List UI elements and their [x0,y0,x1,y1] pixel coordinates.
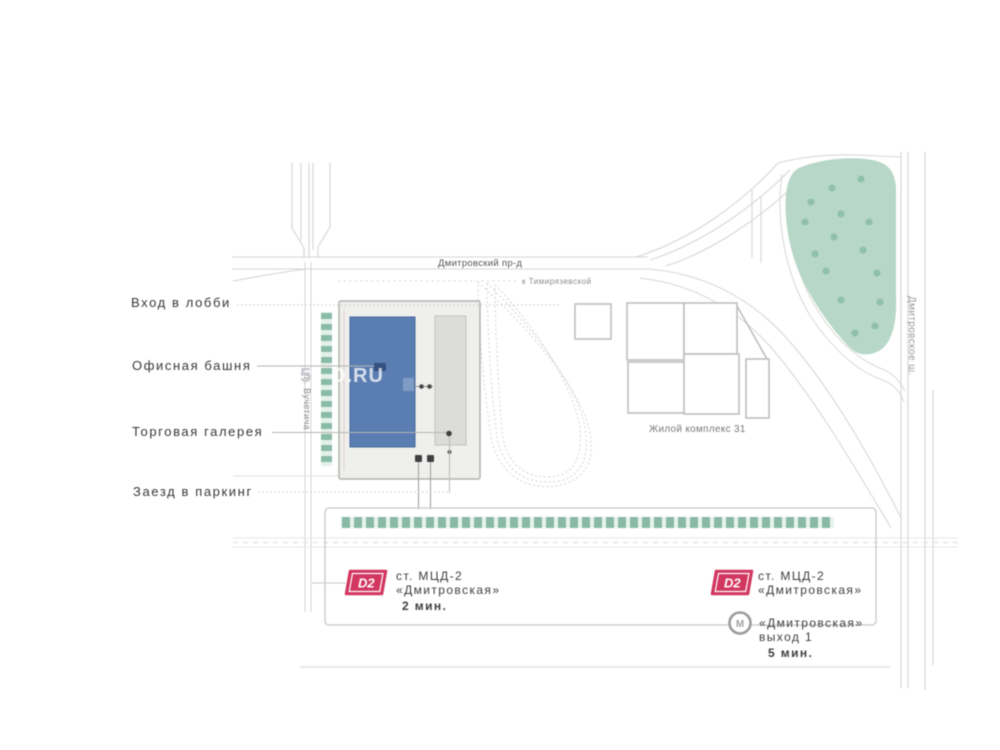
svg-text:D2: D2 [724,576,741,591]
svg-text:Офисная башня: Офисная башня [132,358,251,373]
svg-text:выход 1: выход 1 [759,630,813,644]
svg-text:ст. МЦД-2: ст. МЦД-2 [758,569,825,583]
svg-text:М: М [736,619,744,630]
svg-text:5 мин.: 5 мин. [768,646,813,660]
svg-text:Дмитровский пр-д: Дмитровский пр-д [438,258,522,269]
svg-text:Заезд в паркинг: Заезд в паркинг [133,484,253,499]
svg-text:Торговая галерея: Торговая галерея [132,424,263,439]
svg-text:5: 5 [300,365,312,387]
svg-text:«Дмитровская»: «Дмитровская» [758,583,862,597]
svg-text:2 мин.: 2 мин. [402,599,447,613]
svg-text:«Дмитровская»: «Дмитровская» [396,583,500,597]
svg-text:к Тимирязевской: к Тимирязевской [522,277,592,286]
svg-text:D2: D2 [358,576,375,591]
svg-text:«Дмитровская»: «Дмитровская» [759,616,863,630]
svg-text:Вход в лобби: Вход в лобби [131,295,231,310]
svg-text:Дмитровское ш.: Дмитровское ш. [906,296,917,376]
svg-text:D.RU: D.RU [331,365,384,387]
svg-text:Жилой комплекс 31: Жилой комплекс 31 [649,424,746,435]
svg-text:ст. МЦД-2: ст. МЦД-2 [396,569,463,583]
